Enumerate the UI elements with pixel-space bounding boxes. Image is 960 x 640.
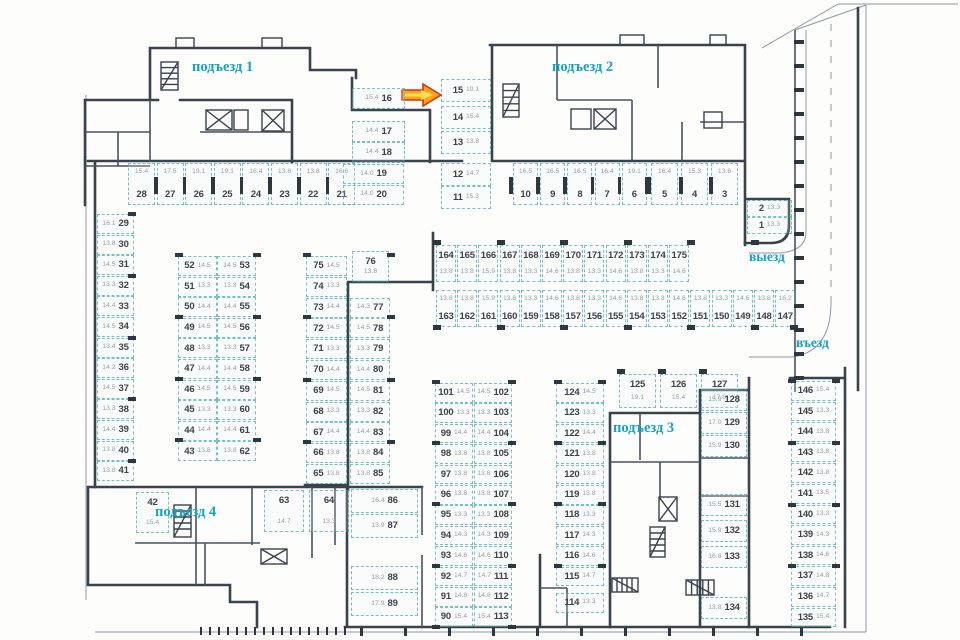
parking-spot-52: 5214.5 xyxy=(178,256,217,276)
structural-column-tick xyxy=(432,441,440,445)
parking-spot-79: 7913.3 xyxy=(350,339,390,359)
structural-column-tick xyxy=(712,628,715,636)
parking-spot-41: 4113.8 xyxy=(97,461,134,481)
parking-spot-170: 17013.8 xyxy=(563,245,583,282)
parking-spot-142: 14213.8 xyxy=(791,463,836,483)
structural-column-tick xyxy=(299,627,301,635)
parking-spot-45: 4513.3 xyxy=(178,400,217,420)
structural-column-tick xyxy=(832,441,840,445)
structural-column-tick xyxy=(536,177,540,194)
parking-spot-64: 6413.3 xyxy=(309,490,349,532)
parking-spot-34: 3414.5 xyxy=(97,317,134,337)
parking-spot-117: 11714.3 xyxy=(556,526,604,546)
structural-column-tick xyxy=(788,503,796,507)
structural-column-tick xyxy=(175,253,183,257)
parking-spot-108: 10813.3 xyxy=(474,505,512,525)
structural-column-tick xyxy=(240,177,244,194)
structural-column-tick xyxy=(432,502,440,506)
structural-column-tick xyxy=(326,177,330,194)
parking-spot-114: 11413.3 xyxy=(556,593,604,613)
parking-spot-14: 1415.4 xyxy=(441,106,491,129)
parking-spot-10: 1016.5 xyxy=(513,163,538,205)
structural-column-tick xyxy=(580,628,583,636)
structural-column-tick xyxy=(297,177,301,194)
parking-spot-149: 14914.6 xyxy=(733,290,753,327)
parking-spot-141: 14113.5 xyxy=(791,484,836,504)
parking-spot-125: 12519.1 xyxy=(619,374,656,408)
parking-spot-168: 16813.3 xyxy=(521,245,541,282)
structural-column-tick xyxy=(218,627,220,635)
parking-spot-105: 10513.8 xyxy=(474,444,512,464)
parking-spot-107: 10713.8 xyxy=(474,485,512,505)
structural-column-tick xyxy=(560,325,568,330)
entry-label: въезд xyxy=(796,335,829,351)
exit-label: выезд xyxy=(749,249,785,265)
structural-column-tick xyxy=(387,440,395,444)
parking-spot-76: 7613.8 xyxy=(352,251,389,282)
structural-column-tick xyxy=(290,627,292,635)
parking-spot-95: 9513.3 xyxy=(435,505,473,525)
structural-column-tick xyxy=(344,627,346,635)
structural-column-tick xyxy=(432,380,440,384)
parking-spot-165: 16513.8 xyxy=(457,245,477,282)
structural-column-tick xyxy=(360,628,363,636)
parking-spot-137: 13714.8 xyxy=(791,566,836,586)
structural-column-tick xyxy=(560,240,568,245)
parking-spot-159: 15913.3 xyxy=(521,290,541,327)
structural-column-tick xyxy=(335,627,337,635)
parking-spot-123: 12313.3 xyxy=(556,403,604,423)
parking-spot-136: 13614.7 xyxy=(791,587,836,607)
structural-column-tick xyxy=(128,212,136,216)
structural-column-tick xyxy=(794,184,804,188)
parking-spot-12: 1214.7 xyxy=(441,163,491,186)
parking-spot-89: 8917.9 xyxy=(351,592,418,616)
parking-spot-85: 8513.8 xyxy=(350,464,390,484)
structural-column-tick xyxy=(598,380,606,384)
structural-column-tick xyxy=(236,627,238,635)
structural-column-tick xyxy=(175,315,183,319)
structural-column-tick xyxy=(624,325,632,330)
parking-spot-169: 16914.6 xyxy=(542,245,562,282)
parking-spot-15: 1519.1 xyxy=(441,79,491,102)
structural-column-tick xyxy=(497,325,505,330)
parking-spot-60: 6013.3 xyxy=(217,400,256,420)
parking-spot-53: 5314.5 xyxy=(217,256,256,276)
structural-column-tick xyxy=(509,177,513,194)
parking-spot-77: 7714.3 xyxy=(350,298,390,318)
structural-column-tick xyxy=(554,380,562,384)
parking-spot-163: 16313.8 xyxy=(436,290,456,327)
parking-spot-156: 15613.3 xyxy=(584,290,604,327)
parking-spot-161: 16115.9 xyxy=(478,290,498,327)
parking-spot-113: 11315.4 xyxy=(474,607,512,627)
parking-spot-155: 15514.6 xyxy=(606,290,626,327)
parking-spot-103: 10313.3 xyxy=(474,403,512,423)
parking-spot-133: 13316.8 xyxy=(701,546,747,568)
parking-spot-134: 13413.8 xyxy=(701,597,747,619)
structural-column-tick xyxy=(832,379,840,383)
structural-column-tick xyxy=(563,177,567,194)
parking-spot-166: 16615.9 xyxy=(478,245,498,282)
building2-walls xyxy=(490,45,789,245)
structural-column-tick xyxy=(687,240,695,245)
parking-spot-97: 9713.8 xyxy=(435,465,473,485)
structural-column-tick xyxy=(253,377,261,381)
parking-spot-96: 9613.8 xyxy=(435,485,473,505)
parking-spot-86: 8616.4 xyxy=(351,489,418,513)
structural-column-tick xyxy=(788,564,796,568)
parking-spot-69: 6914.5 xyxy=(306,381,347,401)
parking-spot-109: 10914.3 xyxy=(474,526,512,546)
structural-column-tick xyxy=(387,315,395,319)
parking-spot-18: 1814.4 xyxy=(352,142,405,163)
parking-spot-71: 7113.3 xyxy=(306,339,347,359)
structural-column-tick xyxy=(598,502,606,506)
stairs-icon xyxy=(650,527,665,557)
structural-column-tick xyxy=(154,177,158,194)
parking-spot-143: 14313.8 xyxy=(791,443,836,463)
parking-spot-62: 6213.8 xyxy=(217,441,256,461)
structural-column-tick xyxy=(794,328,804,332)
structural-column-tick xyxy=(794,64,804,68)
parking-spot-46: 4614.5 xyxy=(178,380,217,400)
parking-spot-48: 4813.3 xyxy=(178,338,217,358)
parking-spot-118: 11813.3 xyxy=(556,505,604,525)
parking-spot-3: 313.6 xyxy=(711,163,738,205)
elevator-icon xyxy=(206,110,232,130)
parking-spot-120: 12013.8 xyxy=(556,465,604,485)
parking-spot-158: 15814.6 xyxy=(542,290,562,327)
structural-column-tick xyxy=(227,627,229,635)
parking-spot-2: 213.3 xyxy=(747,200,792,217)
structural-column-tick xyxy=(128,459,136,463)
building1-partitions xyxy=(85,100,292,166)
structural-column-tick xyxy=(598,441,606,445)
parking-spot-74: 7413.3 xyxy=(306,277,347,297)
parking-spot-150: 15013.3 xyxy=(712,290,732,327)
parking-spot-92: 9214.7 xyxy=(435,567,473,587)
structural-column-tick xyxy=(254,627,256,635)
parking-spot-58: 5814.4 xyxy=(217,359,256,379)
entrance4-label: подъезд 4 xyxy=(155,504,216,521)
parking-spot-152: 15214.6 xyxy=(669,290,689,327)
parking-spot-36: 3614.2 xyxy=(97,358,134,378)
structural-column-tick xyxy=(794,376,804,380)
structural-column-tick xyxy=(508,441,516,445)
structural-column-tick xyxy=(668,628,671,636)
parking-spot-175: 17514.6 xyxy=(669,245,689,282)
parking-spot-72: 7214.5 xyxy=(306,318,347,338)
parking-spot-82: 8213.3 xyxy=(350,402,390,422)
parking-spot-49: 4914.5 xyxy=(178,318,217,338)
structural-column-tick xyxy=(554,502,562,506)
structural-column-tick xyxy=(175,377,183,381)
parking-spot-151: 15113.8 xyxy=(690,290,710,327)
structural-column-tick xyxy=(508,380,516,384)
structural-column-tick xyxy=(303,378,311,382)
parking-spot-147: 14716.2 xyxy=(775,290,795,327)
parking-spot-91: 9114.8 xyxy=(435,587,473,607)
structural-column-tick xyxy=(800,628,803,636)
structural-column-tick xyxy=(209,627,211,635)
parking-spot-94: 9414.3 xyxy=(435,526,473,546)
structural-column-tick xyxy=(699,369,707,374)
parking-spot-57: 5713.3 xyxy=(217,338,256,358)
parking-spot-98: 9813.8 xyxy=(435,444,473,464)
parking-spot-20: 2014.0 xyxy=(343,185,404,205)
structural-column-tick xyxy=(432,625,440,629)
parking-spot-23: 2313.8 xyxy=(271,163,298,205)
structural-column-tick xyxy=(624,240,632,245)
parking-spot-131: 13115.5 xyxy=(701,494,747,516)
parking-spot-81: 8114.5 xyxy=(350,381,390,401)
structural-column-tick xyxy=(794,304,804,308)
parking-spot-88: 8818.2 xyxy=(351,566,418,590)
elevator-icon xyxy=(594,109,616,129)
structural-column-tick xyxy=(624,628,627,636)
structural-column-tick xyxy=(268,177,272,194)
elevator-icon xyxy=(262,110,284,131)
structural-column-tick xyxy=(128,336,136,340)
parking-spot-167: 16713.8 xyxy=(500,245,520,282)
parking-spot-9: 916.5 xyxy=(540,163,565,205)
parking-spot-80: 8014.4 xyxy=(350,360,390,380)
parking-spot-106: 10613.8 xyxy=(474,465,512,485)
structural-column-tick xyxy=(687,325,695,330)
parking-spot-17: 1714.4 xyxy=(352,121,405,142)
parking-spot-87: 8713.9 xyxy=(351,514,418,538)
parking-spot-119: 11913.8 xyxy=(556,485,604,505)
parking-spot-153: 15313.3 xyxy=(648,290,668,327)
parking-spot-171: 17113.3 xyxy=(584,245,604,282)
structural-column-tick xyxy=(303,253,311,257)
parking-spot-100: 10013.3 xyxy=(435,403,473,423)
structural-column-tick xyxy=(253,438,261,442)
structural-column-tick xyxy=(794,352,804,356)
parking-spot-164: 16413.8 xyxy=(436,245,456,282)
parking-spot-35: 3513.4 xyxy=(97,338,134,358)
parking-spot-56: 5614.5 xyxy=(217,318,256,338)
parking-spot-124: 12414.5 xyxy=(556,383,604,403)
parking-spot-5: 516.4 xyxy=(651,163,678,205)
structural-column-tick xyxy=(326,627,328,635)
elevator-icon xyxy=(261,549,287,564)
structural-column-tick xyxy=(554,564,562,568)
parking-spot-26: 2619.1 xyxy=(185,163,212,205)
structural-column-tick xyxy=(598,564,606,568)
parking-spot-148: 14813.8 xyxy=(754,290,774,327)
parking-spot-101: 10114.5 xyxy=(435,383,473,403)
structural-column-tick xyxy=(794,136,804,140)
parking-spot-121: 12113.8 xyxy=(556,444,604,464)
parking-spot-4: 415.3 xyxy=(681,163,708,205)
structural-column-tick xyxy=(211,177,215,194)
parking-spot-138: 13814.6 xyxy=(791,546,836,566)
parking-spot-73: 7314.4 xyxy=(306,298,347,318)
parking-spot-129: 12917.0 xyxy=(701,412,747,434)
parking-spot-66: 6613.8 xyxy=(306,443,347,463)
parking-spot-122: 12214.4 xyxy=(556,424,604,444)
parking-spot-126: 12615.4 xyxy=(660,374,697,408)
structural-column-tick xyxy=(432,564,440,568)
parking-spot-93: 9314.6 xyxy=(435,546,473,566)
parking-spot-50: 5014.4 xyxy=(178,297,217,317)
parking-spot-47: 4714.4 xyxy=(178,359,217,379)
parking-spot-128: 12815.9 xyxy=(701,389,747,411)
structural-column-tick xyxy=(433,240,441,245)
parking-spot-43: 4313.8 xyxy=(178,441,217,461)
structural-column-tick xyxy=(387,378,395,382)
parking-spot-75: 7514.5 xyxy=(306,256,347,276)
structural-column-tick xyxy=(647,177,651,194)
parking-spot-44: 4414.4 xyxy=(178,421,217,441)
parking-spot-68: 6813.3 xyxy=(306,402,347,422)
structural-column-tick xyxy=(709,177,713,194)
parking-spot-110: 11014.6 xyxy=(474,546,512,566)
parking-spot-144: 14413.8 xyxy=(791,422,836,442)
parking-spot-174: 17413.3 xyxy=(648,245,668,282)
parking-spot-70: 7014.4 xyxy=(306,360,347,380)
parking-spot-1: 113.3 xyxy=(747,217,792,234)
parking-spot-140: 14013.3 xyxy=(791,505,836,525)
parking-spot-116: 11614.6 xyxy=(556,546,604,566)
direction-arrow-icon xyxy=(402,84,441,106)
parking-spot-63: 6314.7 xyxy=(264,490,304,532)
parking-spot-31: 3114.5 xyxy=(97,255,134,275)
parking-spot-7: 716.4 xyxy=(595,163,620,205)
structural-column-tick xyxy=(794,280,804,284)
structural-column-tick xyxy=(263,627,265,635)
structural-column-tick xyxy=(253,315,261,319)
structural-column-tick xyxy=(794,256,804,260)
structural-column-tick xyxy=(508,564,516,568)
parking-spot-162: 16213.8 xyxy=(457,290,477,327)
structural-column-tick xyxy=(751,240,759,245)
parking-spot-38: 3813.3 xyxy=(97,399,134,419)
parking-spot-78: 7814.5 xyxy=(350,318,390,338)
parking-spot-37: 3714.5 xyxy=(97,379,134,399)
parking-spot-102: 10214.5 xyxy=(474,383,512,403)
parking-spot-139: 13914.3 xyxy=(791,525,836,545)
parking-spot-6: 619.1 xyxy=(622,163,647,205)
parking-spot-112: 11214.8 xyxy=(474,587,512,607)
garage-floor-plan: подъезд 1 подъезд 2 подъезд 3 подъезд 4 … xyxy=(0,0,960,640)
parking-spot-130: 13015.9 xyxy=(701,435,747,457)
structural-column-tick xyxy=(554,441,562,445)
stairs-icon xyxy=(161,62,178,90)
parking-spot-51: 5113.3 xyxy=(178,277,217,297)
parking-spot-61: 6114.4 xyxy=(217,421,256,441)
parking-spot-40: 4013.8 xyxy=(97,441,134,461)
parking-spot-111: 11114.7 xyxy=(474,567,512,587)
structural-column-tick xyxy=(788,441,796,445)
parking-spot-33: 3314.4 xyxy=(97,296,134,316)
parking-spot-154: 15413.8 xyxy=(627,290,647,327)
structural-column-tick xyxy=(175,438,183,442)
entrance3-label: подъезд 3 xyxy=(613,420,674,437)
parking-spot-13: 1313.8 xyxy=(441,131,491,154)
structural-column-tick xyxy=(404,628,407,636)
structural-column-tick xyxy=(794,232,804,236)
structural-column-tick xyxy=(303,315,311,319)
structural-column-tick xyxy=(536,628,539,636)
structural-column-tick xyxy=(245,627,247,635)
structural-column-tick xyxy=(387,253,395,257)
structural-column-tick xyxy=(751,325,759,330)
parking-spot-54: 5413.3 xyxy=(217,277,256,297)
entrance2-label: подъезд 2 xyxy=(552,59,613,76)
parking-spot-90: 9015.4 xyxy=(435,607,473,627)
structural-column-tick xyxy=(832,503,840,507)
structural-column-tick xyxy=(794,88,804,92)
structural-column-tick xyxy=(128,274,136,278)
building1-walls xyxy=(85,48,462,487)
parking-spot-104: 10414.4 xyxy=(474,424,512,444)
structural-column-tick xyxy=(303,440,311,444)
parking-spot-65: 6513.8 xyxy=(306,464,347,484)
structural-column-tick xyxy=(317,627,319,635)
structural-column-tick xyxy=(756,628,759,636)
parking-spot-99: 9914.4 xyxy=(435,424,473,444)
structural-column-tick xyxy=(679,177,683,194)
parking-spot-22: 2213.8 xyxy=(300,163,327,205)
parking-spot-8: 816.5 xyxy=(567,163,592,205)
parking-spot-27: 2717.5 xyxy=(157,163,184,205)
parking-spot-11: 1115.3 xyxy=(441,186,491,209)
parking-spot-55: 5514.4 xyxy=(217,297,256,317)
structural-column-tick xyxy=(497,240,505,245)
structural-column-tick xyxy=(658,369,666,374)
parking-spot-59: 5914.5 xyxy=(217,380,256,400)
structural-column-tick xyxy=(508,625,516,629)
structural-column-tick xyxy=(794,208,804,212)
entrance1-label: подъезд 1 xyxy=(192,59,253,76)
parking-spot-30: 3013.8 xyxy=(97,235,134,255)
elevator-icon xyxy=(659,497,677,521)
parking-spot-132: 13215.9 xyxy=(701,520,747,542)
structural-column-tick xyxy=(591,177,595,194)
structural-column-tick xyxy=(128,397,136,401)
parking-spot-160: 16013.8 xyxy=(500,290,520,327)
structural-column-tick xyxy=(253,253,261,257)
structural-column-tick xyxy=(200,627,202,635)
structural-column-tick xyxy=(794,160,804,164)
parking-spot-39: 3914.4 xyxy=(97,420,134,440)
structural-column-tick xyxy=(832,564,840,568)
parking-spot-24: 2416.4 xyxy=(242,163,269,205)
parking-spot-29: 2916.1 xyxy=(97,214,134,234)
parking-spot-28: 2815.4 xyxy=(128,163,155,205)
stairs-icon xyxy=(503,84,519,117)
structural-column-tick xyxy=(794,112,804,116)
parking-spot-67: 6714.4 xyxy=(306,422,347,442)
parking-spot-146: 14615.4 xyxy=(791,381,836,401)
parking-spot-32: 3213.3 xyxy=(97,276,134,296)
parking-spot-173: 17313.8 xyxy=(627,245,647,282)
structural-column-tick xyxy=(308,627,310,635)
structural-column-tick xyxy=(617,369,625,374)
parking-spot-115: 11514.7 xyxy=(556,567,604,587)
structural-column-tick xyxy=(183,177,187,194)
parking-spot-19: 1914.0 xyxy=(343,164,404,184)
structural-column-tick xyxy=(272,627,274,635)
parking-spot-16: 1615.4 xyxy=(352,88,405,109)
parking-spot-135: 13515.4 xyxy=(791,608,836,628)
parking-spot-83: 8314.4 xyxy=(350,422,390,442)
parking-spot-145: 14513.3 xyxy=(791,402,836,422)
structural-column-tick xyxy=(618,177,622,194)
